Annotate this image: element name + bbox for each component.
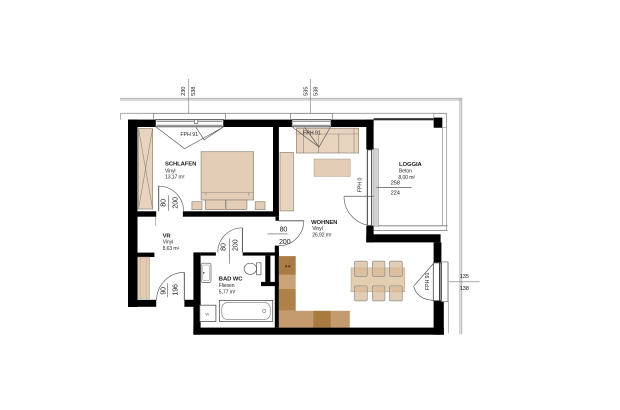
svg-text:80: 80	[219, 243, 228, 251]
svg-text:FPH 91: FPH 91	[180, 132, 198, 138]
svg-text:BAD WC: BAD WC	[219, 277, 243, 283]
svg-text:200: 200	[171, 197, 180, 209]
svg-text:Fliesen: Fliesen	[219, 283, 235, 289]
svg-text:224: 224	[391, 191, 401, 197]
svg-text:FPH 91: FPH 91	[303, 130, 321, 136]
svg-text:LOGGIA: LOGGIA	[399, 162, 422, 168]
svg-text:SCHLAFEN: SCHLAFEN	[165, 162, 196, 168]
svg-text:90: 90	[158, 287, 167, 295]
svg-text:538: 538	[191, 87, 197, 96]
svg-text:138: 138	[460, 286, 469, 292]
svg-text:200: 200	[231, 239, 240, 251]
svg-text:258: 258	[391, 180, 400, 186]
svg-text:200: 200	[279, 237, 291, 246]
svg-text:FPH 0: FPH 0	[357, 178, 363, 193]
svg-text:Beton: Beton	[399, 169, 412, 175]
svg-text:W: W	[205, 311, 209, 316]
svg-text:FPH 91: FPH 91	[425, 272, 431, 290]
svg-text:196: 196	[171, 284, 180, 296]
svg-text:80: 80	[158, 199, 167, 207]
svg-text:538: 538	[313, 87, 319, 96]
svg-text:8,00 m²: 8,00 m²	[398, 175, 415, 181]
svg-text:13,17 m²: 13,17 m²	[165, 175, 185, 181]
svg-text:535: 535	[303, 87, 309, 96]
svg-text:80: 80	[280, 224, 288, 233]
svg-text:26,92 m²: 26,92 m²	[312, 232, 332, 238]
svg-text:Vinyl: Vinyl	[165, 168, 175, 174]
svg-text:8,63 m²: 8,63 m²	[163, 246, 180, 252]
svg-text:5,77 m²: 5,77 m²	[219, 289, 236, 295]
svg-text:230: 230	[181, 87, 187, 96]
svg-text:Vinyl: Vinyl	[163, 239, 173, 245]
svg-text:Vinyl: Vinyl	[312, 226, 322, 232]
svg-text:135: 135	[460, 274, 469, 280]
